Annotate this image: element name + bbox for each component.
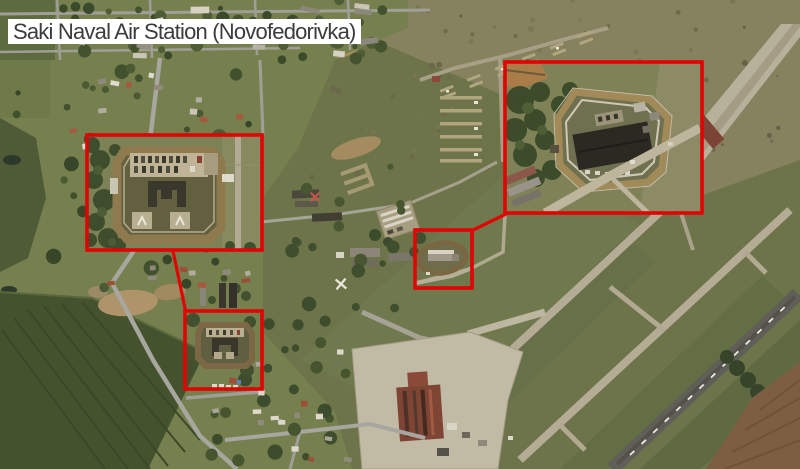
tree <box>64 104 71 111</box>
tree <box>232 454 244 466</box>
tree <box>396 200 405 209</box>
hq-compound-inset <box>502 62 702 213</box>
tree <box>211 258 219 266</box>
building <box>236 114 243 120</box>
tree <box>60 176 67 183</box>
building <box>271 416 279 421</box>
tree <box>776 126 780 130</box>
tree <box>334 221 345 232</box>
tree <box>218 6 223 11</box>
tree <box>578 18 581 21</box>
tree <box>134 92 141 99</box>
tree <box>334 93 337 96</box>
apron <box>352 332 523 469</box>
building <box>229 378 237 384</box>
tree <box>341 82 344 85</box>
tree <box>336 88 342 94</box>
tree <box>360 128 362 130</box>
tree <box>377 5 387 15</box>
tree <box>721 143 724 146</box>
building <box>191 6 210 13</box>
tree <box>288 423 301 436</box>
tree <box>742 60 748 66</box>
tree <box>413 149 417 153</box>
tree <box>310 361 323 374</box>
building <box>98 108 107 114</box>
tree <box>13 111 21 119</box>
tree <box>292 344 299 351</box>
building <box>148 73 154 79</box>
building <box>150 265 156 270</box>
tree <box>257 394 271 408</box>
tree <box>689 48 693 52</box>
tree <box>432 183 435 186</box>
tree <box>106 8 112 14</box>
tree <box>470 32 474 36</box>
tree <box>158 46 165 53</box>
building <box>333 50 345 57</box>
tree <box>459 14 462 17</box>
tree <box>352 264 366 278</box>
tree <box>220 407 231 418</box>
tree <box>320 316 331 327</box>
tree <box>513 34 517 38</box>
tree <box>59 4 67 12</box>
tree <box>436 62 442 68</box>
tree <box>184 127 190 133</box>
screenshot: Saki Naval Air Station (Novofedorivka) <box>0 0 800 469</box>
tree <box>181 279 191 289</box>
tree <box>387 241 400 254</box>
tree <box>704 77 709 82</box>
tree <box>221 275 228 282</box>
tree <box>413 73 417 77</box>
tree <box>285 244 299 258</box>
tree <box>292 237 300 245</box>
building <box>278 420 285 425</box>
tree <box>230 68 242 80</box>
tree <box>390 94 394 98</box>
tree <box>410 155 414 159</box>
tree <box>289 384 299 394</box>
building <box>148 275 156 280</box>
tree <box>433 133 436 136</box>
tree <box>15 90 20 95</box>
building <box>253 44 266 49</box>
tree <box>694 28 698 32</box>
tree <box>528 26 534 32</box>
tree <box>776 75 778 77</box>
tree <box>493 25 497 29</box>
building <box>337 349 344 354</box>
tree <box>350 52 362 64</box>
building <box>198 282 207 288</box>
tree <box>278 55 287 64</box>
fort-compound-inset <box>83 135 262 254</box>
tree <box>341 369 351 379</box>
map-title: Saki Naval Air Station (Novofedorivka) <box>8 19 361 44</box>
tree <box>245 121 252 128</box>
tree <box>387 164 393 170</box>
satellite-image <box>0 0 800 469</box>
tree <box>281 346 288 353</box>
tree <box>530 17 535 22</box>
tree <box>90 85 96 91</box>
tree <box>371 129 376 134</box>
building <box>196 97 202 102</box>
tree <box>83 3 94 14</box>
tree <box>356 171 360 175</box>
building <box>133 53 147 59</box>
tree <box>206 449 218 461</box>
tree <box>429 63 435 69</box>
tree <box>212 434 223 445</box>
building <box>189 270 196 275</box>
tree <box>135 74 143 82</box>
tree <box>162 255 172 265</box>
tree <box>676 10 681 15</box>
tree <box>352 303 360 311</box>
tree <box>330 86 336 92</box>
tree <box>438 129 441 132</box>
tree <box>436 125 441 130</box>
tree <box>447 75 452 80</box>
tree <box>770 139 773 142</box>
tree <box>379 260 385 266</box>
building <box>253 409 262 414</box>
tree <box>334 197 344 207</box>
tree <box>443 29 448 34</box>
tree <box>352 44 357 49</box>
building <box>222 269 231 275</box>
tree <box>309 174 315 180</box>
tree <box>301 183 312 194</box>
building <box>190 109 198 115</box>
building <box>294 412 300 418</box>
building <box>301 401 308 407</box>
tree <box>767 133 772 138</box>
tree <box>390 304 399 313</box>
tree <box>78 44 91 57</box>
tree <box>64 157 79 172</box>
tree <box>292 319 303 330</box>
tree <box>71 2 81 12</box>
tree <box>743 26 746 29</box>
tree <box>315 337 326 348</box>
tree <box>126 64 136 74</box>
tree <box>468 39 473 44</box>
tree <box>308 243 316 251</box>
tree <box>70 192 77 199</box>
tree <box>82 81 90 89</box>
tree <box>302 297 316 311</box>
tree <box>634 50 639 55</box>
tree <box>164 52 172 60</box>
tree <box>46 249 61 264</box>
tree <box>102 86 109 93</box>
tree <box>135 6 142 13</box>
tree <box>419 114 422 117</box>
building <box>291 446 298 451</box>
tree <box>298 52 307 61</box>
tree <box>263 364 272 373</box>
building <box>258 420 264 425</box>
building <box>154 85 163 90</box>
tree <box>263 318 274 329</box>
tree <box>268 445 283 460</box>
building <box>316 414 323 420</box>
